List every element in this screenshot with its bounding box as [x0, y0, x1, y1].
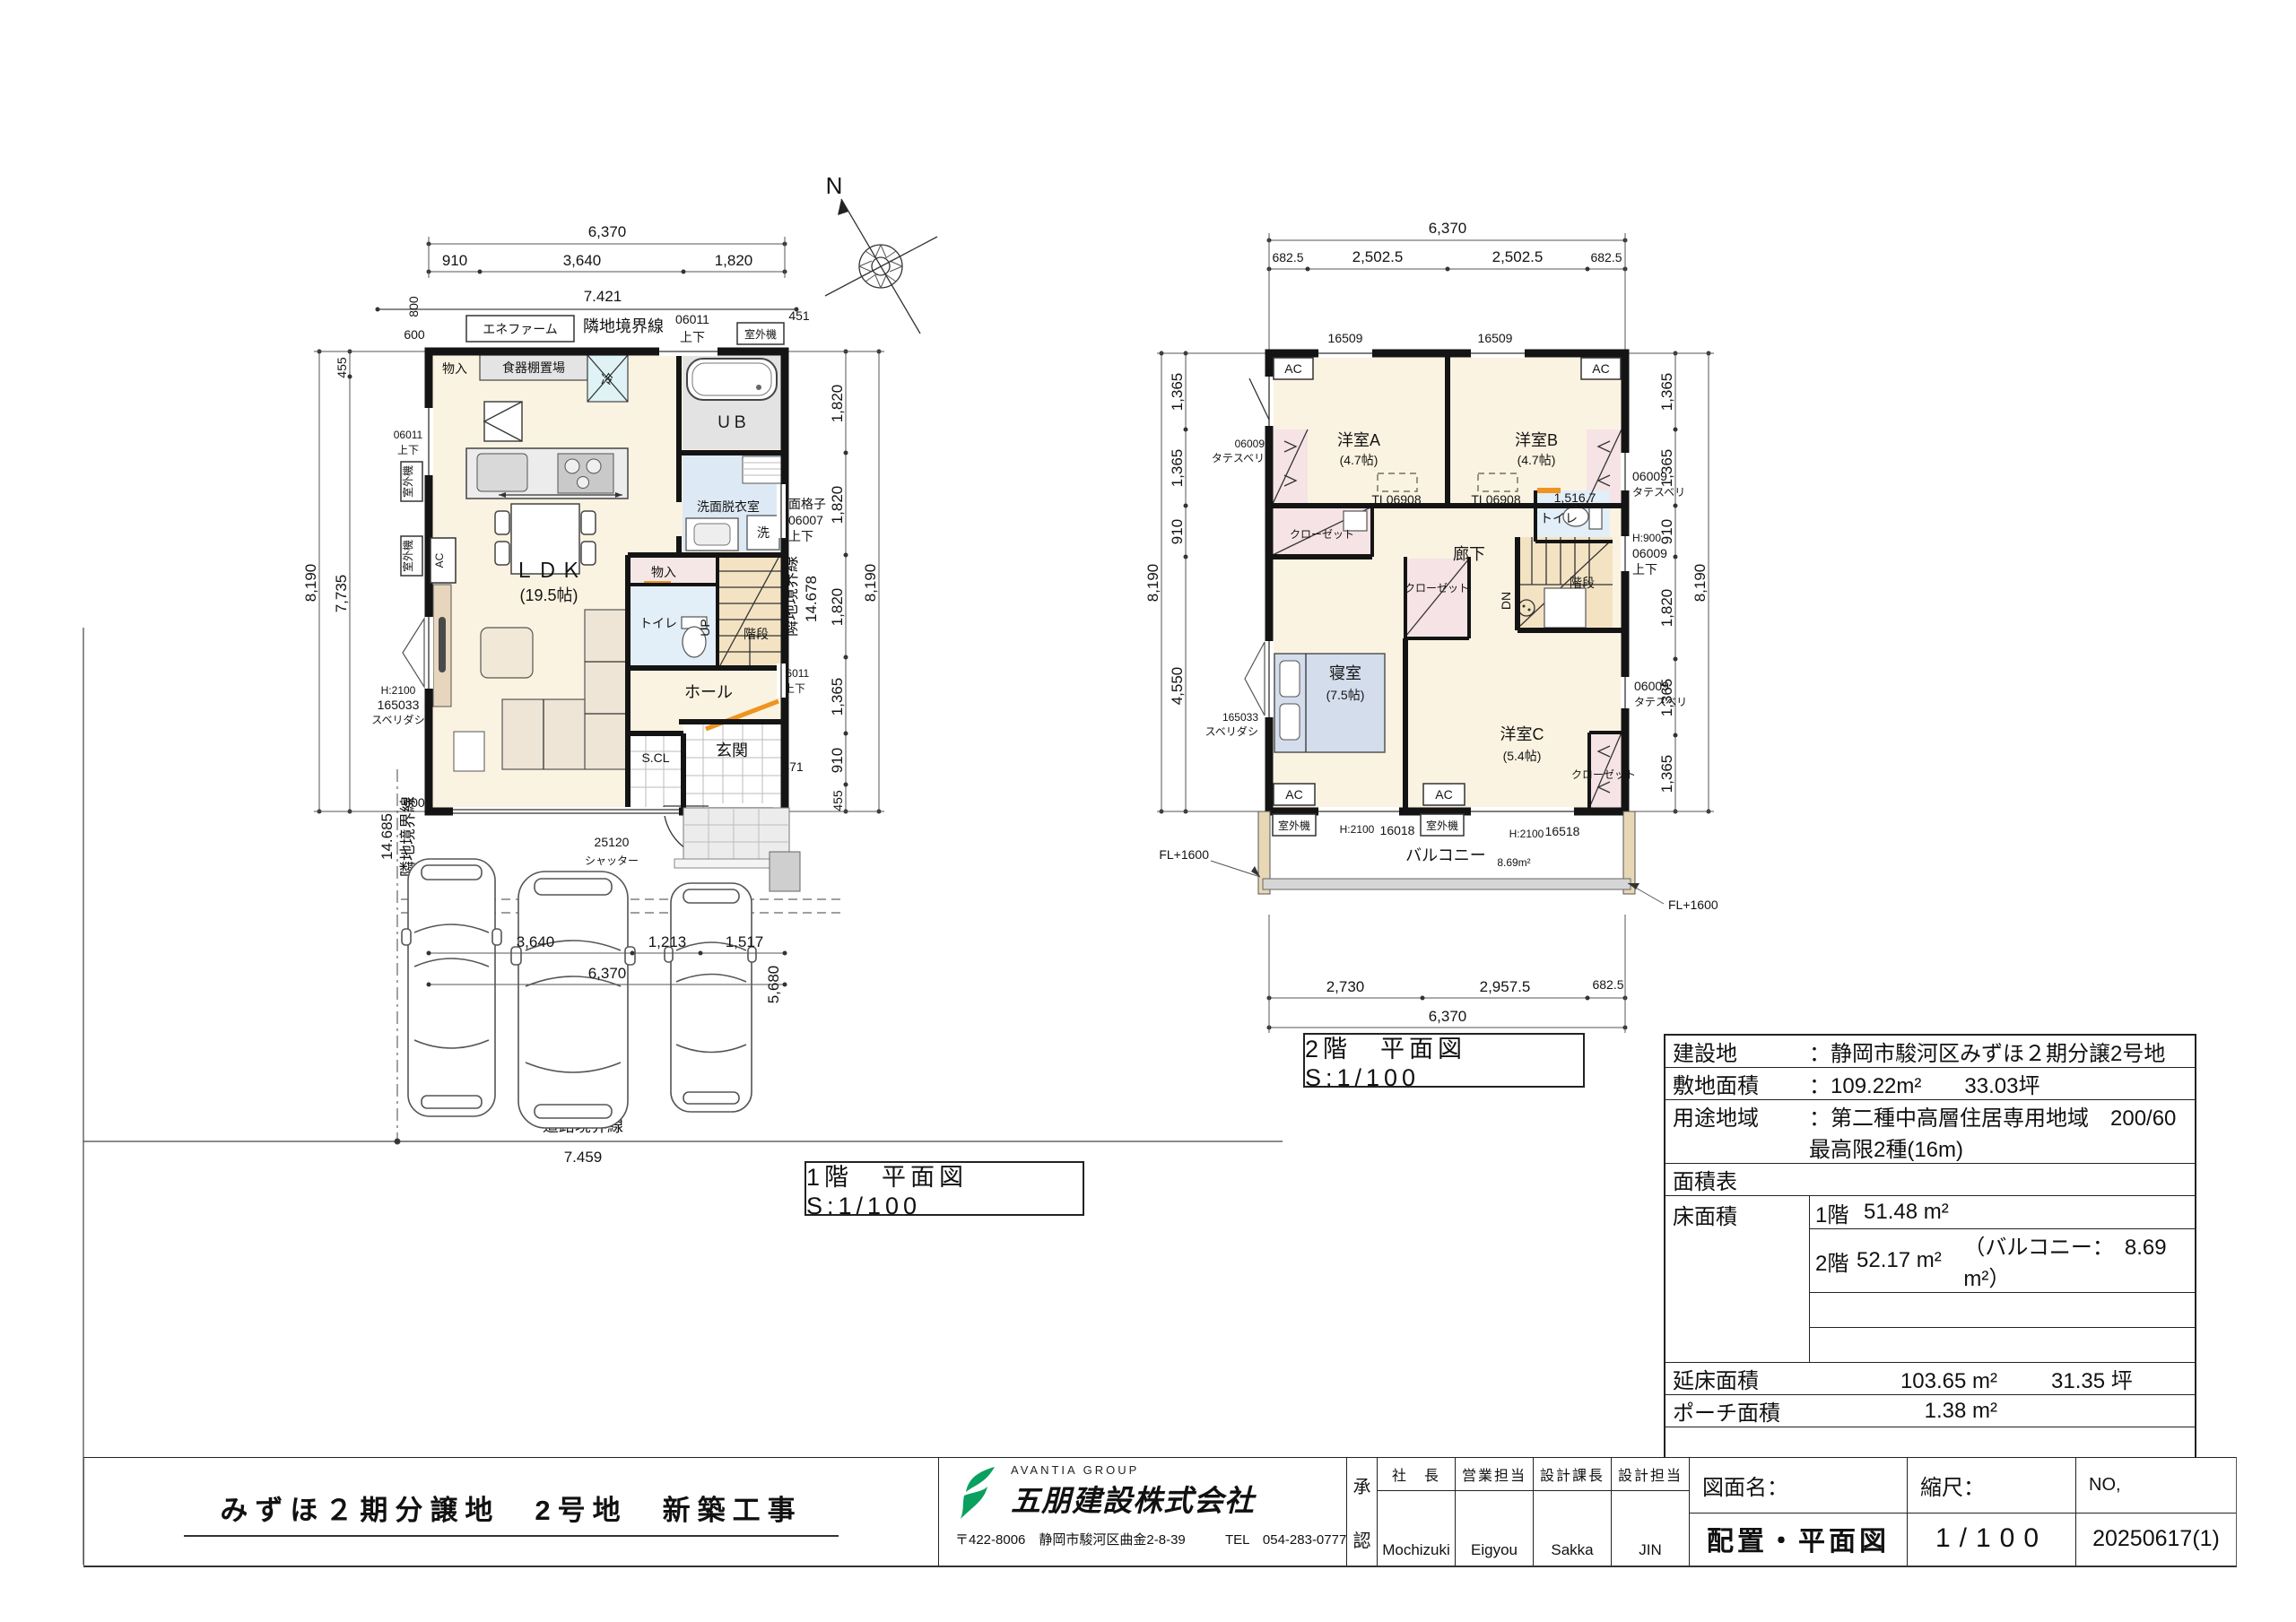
f1-left-dimension-lines: [314, 350, 429, 814]
f1-window-suberidashi: スベリダシ: [371, 713, 424, 726]
compass-rose: [825, 199, 937, 334]
f1-dim-1820-r3: 1,820: [829, 588, 846, 627]
info-label: 延床面積: [1665, 1363, 1809, 1394]
stamp-col-designer: 設計担当 JIN: [1611, 1458, 1689, 1566]
f1-dim-600-top: 600: [404, 327, 425, 342]
room-label-shinshitsu-size: (7.5帖): [1326, 688, 1365, 702]
f1-dim-800: 800: [406, 296, 421, 317]
ac-label-f2-bc: AC: [1435, 787, 1452, 802]
f2-dim-1365-r4: 1,365: [1658, 755, 1675, 794]
car-1: [402, 859, 501, 1116]
f1-dim-1820-r1: 1,820: [829, 385, 846, 423]
balcony-area-label: 8.69m²: [1497, 856, 1530, 869]
room-label-shinshitsu: 寝室: [1329, 664, 1361, 682]
info-row-kensetsuchi: 建設地 ：静岡市駿河区みずほ２期分譲2号地: [1665, 1036, 2195, 1068]
car-3: [665, 883, 756, 1112]
room-label-scl: S.CL: [641, 750, 669, 765]
info-label: 用途地域: [1665, 1100, 1809, 1132]
f2-dim-6825-l: 682.5: [1272, 250, 1303, 265]
stamp-col-sales: 営業担当 Eigyou: [1455, 1458, 1533, 1566]
f1-dim-8190-left: 8,190: [302, 564, 319, 603]
company-name: 五朋建設株式会社: [1011, 1477, 1255, 1520]
f1-caption-box: 1階 平面図 S:1/100: [804, 1161, 1084, 1216]
room-label-kaidan1: 階段: [744, 627, 769, 641]
f1-window-165033: 165033: [378, 698, 420, 712]
project-info-table: 建設地 ：静岡市駿河区みずほ２期分譲2号地 敷地面積 ：109.22m² 33.…: [1664, 1034, 2196, 1495]
info-row-nobeyuka: 延床面積 103.65 m²31.35 坪: [1665, 1363, 2195, 1395]
room-label-kaidan2: 階段: [1570, 576, 1595, 590]
closet-center-label: クローゼット: [1405, 582, 1469, 594]
room-label-shokkidana: 食器棚置場: [502, 360, 565, 375]
balcony-window1-h: H:2100: [1340, 823, 1375, 836]
f2-top-dimension-lines: [1267, 233, 1628, 351]
drawing-scale: 1/100: [1908, 1514, 2075, 1564]
f1-caption: 1階 平面図 S:1/100: [806, 1158, 1083, 1220]
stairs-dn-label: DN: [1499, 592, 1513, 610]
ac-label-f2-tr: AC: [1592, 361, 1609, 376]
room-scl: [628, 733, 683, 808]
f2-caption-box: 2階 平面図 S:1/100: [1303, 1033, 1585, 1088]
f2-right-window3-id: 06009: [1634, 679, 1669, 693]
enefarm-label: エネファーム: [483, 322, 558, 336]
parking-dim-3640: 3,640: [517, 933, 555, 950]
f1-dim-455-left: 455: [335, 357, 349, 378]
fl1600-left: FL+1600: [1159, 847, 1209, 862]
number-cell: NO, 20250617(1): [2075, 1458, 2236, 1566]
f2-stairs-window-id: 06009: [1632, 546, 1667, 560]
f1-dim-910-r: 910: [829, 748, 846, 773]
f2-window-16509-r: 16509: [1478, 331, 1513, 345]
project-name: みずほ２期分譲地 2号地 新築工事: [184, 1488, 838, 1537]
f2-dim-1365-r1: 1,365: [1658, 373, 1675, 412]
room-label-toilet1: トイレ: [639, 616, 677, 630]
f2-dim-1365-l1: 1,365: [1169, 373, 1186, 412]
room-label-yoshitsuA: 洋室A: [1337, 431, 1380, 449]
f2-right-window1-type: タテスベリ: [1632, 486, 1685, 499]
company-cell: AVANTIA GROUP 五朋建設株式会社 〒422-8006 静岡市駿河区曲…: [938, 1458, 1346, 1566]
room-label-yoshitsuC: 洋室C: [1500, 725, 1544, 743]
info-row-shikichi: 敷地面積 ：109.22m² 33.03坪: [1665, 1068, 2195, 1100]
f2-window-suberidashi: スベリダシ: [1205, 724, 1258, 738]
fl1600-right: FL+1600: [1668, 898, 1718, 912]
f2-window-165033: 165033: [1222, 711, 1258, 724]
room-label-yoshitsuC-size: (5.4帖): [1503, 749, 1542, 763]
f2-right-window1-id: 06009: [1632, 469, 1667, 483]
f1-site-width: 7.421: [584, 288, 622, 305]
f1-dim-1820-r2: 1,820: [829, 486, 846, 525]
ac-label-f1: AC: [433, 552, 446, 568]
f2-right-window3-type: タテスベリ: [1634, 696, 1687, 708]
stamp-col-president: 社 長 Mochizuki: [1377, 1458, 1455, 1566]
f2-dim-1820-r: 1,820: [1658, 589, 1675, 628]
parking-dim-1213: 1,213: [648, 933, 687, 950]
room-label-ldk-size: (19.5帖): [519, 586, 578, 604]
project-name-cell: みずほ２期分譲地 2号地 新築工事: [84, 1458, 938, 1566]
info-row-yukamenseki: 床面積 1階 51.48 m² 2階 52.17 m² （バルコニー： 8.69…: [1665, 1196, 2195, 1363]
f1-dim-w2: 3,640: [563, 252, 602, 269]
room-label-rei: 冷: [601, 372, 613, 386]
drawing-name-cell: 図面名： 配置・平面図: [1689, 1458, 1907, 1566]
window-tl06908-b: TL06908: [1471, 492, 1520, 507]
info-label: 面積表: [1665, 1164, 1809, 1195]
info-row-yoto2: 最高限2種(16m): [1665, 1132, 2195, 1164]
room-label-monoire1: 物入: [442, 361, 467, 376]
f1-window-top-ud: 上下: [680, 330, 705, 344]
f2-window-16509-l: 16509: [1328, 331, 1363, 345]
f2-stairs-window-ud: 上下: [1632, 562, 1657, 577]
f1-window-h2100: H:2100: [381, 684, 416, 697]
closet-c-label: クローゼット: [1571, 768, 1636, 781]
room-label-yoshitsuB: 洋室B: [1515, 431, 1558, 449]
f1-dim-5680: 5,680: [765, 966, 782, 1004]
f2-stairs-window-h: H:900: [1632, 532, 1661, 544]
f1-left-window-id: 06011: [394, 429, 423, 441]
info-value: 最高限2種(16m): [1809, 1132, 2195, 1163]
window-tl06908-a: TL06908: [1371, 492, 1421, 507]
room-label-toilet2: トイレ: [1540, 511, 1578, 525]
car-2: [511, 872, 635, 1128]
f1-dim-455-r: 455: [831, 790, 845, 811]
f2-dim-6825-b: 682.5: [1592, 977, 1623, 992]
company-address: 〒422-8006 静岡市駿河区曲金2-8-39: [955, 1532, 1186, 1548]
f2-caption: 2階 平面図 S:1/100: [1305, 1029, 1583, 1092]
f1-dim-451: 451: [788, 308, 810, 323]
room-label-genkan: 玄関: [716, 742, 748, 759]
bathtub: [687, 359, 777, 400]
f2-dim-25025-r: 2,502.5: [1492, 248, 1544, 265]
ac-label-f2-bl: AC: [1285, 787, 1302, 802]
company-tel: TEL 054-283-0777: [1225, 1532, 1346, 1548]
road-boundary-length: 7.459: [564, 1149, 603, 1166]
avantia-logo-icon: [955, 1465, 1002, 1521]
balcony-window2-id: 16518: [1545, 824, 1580, 838]
f2-left-dimension-lines: [1157, 351, 1269, 814]
info-row-porch: ポーチ面積 1.38 m²: [1665, 1395, 2195, 1427]
f1-mengoshi-ud: 上下: [788, 529, 813, 543]
f1-mengoshi-id: 06007: [788, 513, 823, 527]
info-row-yoto: 用途地域 ：第二種中高層住居専用地域 200/60: [1665, 1100, 2195, 1132]
room-label-ldk: ＬＤＫ: [514, 559, 584, 582]
f1-north-boundary-label: 隣地境界線: [583, 317, 664, 335]
f1-window-top-id: 06011: [675, 312, 709, 326]
f2-dim-8190-r: 8,190: [1692, 564, 1709, 603]
outdoor-unit-top-label: 室外機: [744, 327, 777, 341]
balcony-window2-h: H:2100: [1509, 828, 1544, 840]
f2-dim-width-total: 6,370: [1429, 220, 1467, 237]
room-label-yoshitsuB-size: (4.7帖): [1518, 453, 1556, 467]
room-label-balcony: バルコニー: [1405, 846, 1486, 864]
room-label-hall: ホール: [684, 683, 733, 701]
room-label-senmen: 洗面脱衣室: [697, 499, 760, 514]
f2-dim-8190-l: 8,190: [1144, 564, 1161, 603]
f1-dim-w3: 1,820: [715, 252, 753, 269]
balcony-window1-id: 16018: [1380, 823, 1415, 837]
floor-area-1f: 1階 51.48 m²: [1810, 1196, 2195, 1229]
room-label-yoshitsuA-size: (4.7帖): [1340, 453, 1378, 467]
info-value: ：109.22m² 33.03坪: [1809, 1068, 2195, 1099]
room-genkan: [683, 722, 781, 808]
info-label: 床面積: [1665, 1196, 1809, 1362]
outdoor-unit-left2-label: 室外機: [401, 540, 414, 572]
f2-dim-25025-l: 2,502.5: [1352, 248, 1404, 265]
title-block: みずほ２期分譲地 2号地 新築工事 AVANTIA GROUP 五朋建設株式会社…: [83, 1457, 2237, 1567]
f2-dim-6825-r: 682.5: [1590, 250, 1622, 265]
balcony-outdoor-unit2: 室外機: [1426, 819, 1458, 832]
f2-dim-1365-l2: 1,365: [1169, 449, 1186, 488]
north-label: N: [826, 172, 843, 199]
room-label-sentaku: 洗: [757, 525, 770, 540]
info-label: 敷地面積: [1665, 1068, 1809, 1099]
stairs-up-label: UP: [698, 619, 712, 636]
f1-mengoshi-label: 面格子: [788, 497, 826, 511]
f2-dim-910-l: 910: [1169, 519, 1186, 544]
room-label-ub: ＵＢ: [716, 413, 748, 431]
f1-dim-1365-r: 1,365: [829, 678, 846, 716]
f1-east-boundary-length: 14.678: [803, 576, 820, 622]
shutter-id: 25120: [595, 835, 630, 849]
f1-dim-width-total: 6,370: [588, 223, 627, 240]
info-value: ：第二種中高層住居専用地域 200/60: [1809, 1100, 2195, 1132]
room-label-rouka: 廊下: [1453, 545, 1485, 563]
f2-left-window-id: 06009: [1235, 438, 1265, 450]
room-label-monoire2: 物入: [651, 565, 676, 579]
balcony-outdoor-unit1: 室外機: [1278, 819, 1310, 832]
f1-dim-8190-r: 8,190: [862, 564, 879, 603]
closet-main-label: クローゼット: [1290, 528, 1354, 541]
f1-dim-w1: 910: [442, 252, 467, 269]
f2-dim-15167: 1,516.7: [1554, 490, 1596, 505]
info-label: 建設地: [1665, 1036, 1809, 1067]
f1-west-boundary-length: 14.685: [378, 813, 396, 860]
ac-label-f2-tl: AC: [1284, 361, 1301, 376]
f2-dim-2730: 2,730: [1326, 978, 1365, 995]
info-value: ：静岡市駿河区みずほ２期分譲2号地: [1809, 1036, 2195, 1067]
approval-cell: 承 認: [1346, 1458, 1377, 1566]
info-row-mensekihyo: 面積表: [1665, 1164, 2195, 1196]
porch: [674, 808, 800, 891]
floor-area-2f: 2階 52.17 m² （バルコニー： 8.69 m²）: [1810, 1229, 2195, 1293]
f2-dim-4550-l: 4,550: [1169, 667, 1186, 706]
drawing-number: 20250617(1): [2076, 1514, 2236, 1564]
info-label: ポーチ面積: [1665, 1395, 1809, 1427]
parking-dim-6370: 6,370: [588, 965, 627, 982]
f1-left-window-ud: 上下: [397, 444, 419, 456]
scale-cell: 縮尺： 1/100: [1907, 1458, 2075, 1566]
shutter-label: シャッター: [585, 854, 639, 867]
group-name: AVANTIA GROUP: [1011, 1463, 1255, 1477]
drawing-name: 配置・平面図: [1690, 1514, 1907, 1564]
stamp-col-design-chief: 設計課長 Sakka: [1533, 1458, 1611, 1566]
outdoor-unit-left1-label: 室外機: [401, 465, 414, 498]
parking-dim-1517: 1,517: [726, 933, 764, 950]
f1-dim-7735: 7,735: [333, 575, 350, 613]
f2-left-window-type: タテスベリ: [1212, 452, 1265, 464]
f2-dim-29575: 2,957.5: [1480, 978, 1531, 995]
f2-dim-6370-b: 6,370: [1429, 1008, 1467, 1025]
